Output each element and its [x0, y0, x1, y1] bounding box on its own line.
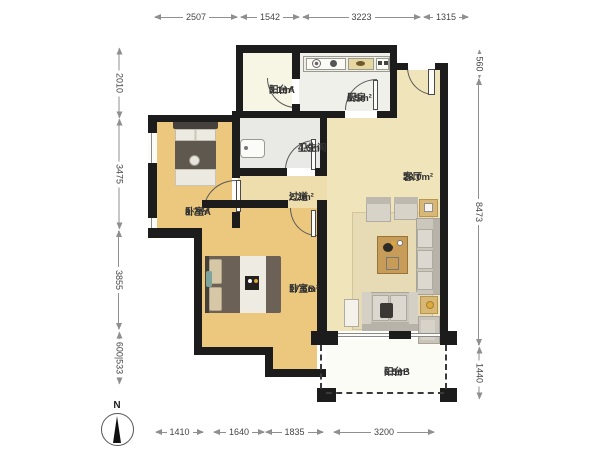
sofa-main-cushion-2 — [417, 250, 433, 269]
dimension-right-0: 560 — [473, 50, 483, 77]
bed-b-decor-dot-yellow — [254, 279, 258, 283]
balcony-b-sliding-window-1 — [338, 333, 389, 337]
sofa-small-arm-left — [362, 292, 371, 324]
balcony-b-sliding-window-2 — [411, 333, 440, 337]
bed-b-decor — [245, 276, 259, 290]
room-area: 8.7m² — [185, 207, 210, 219]
wall — [292, 45, 300, 79]
room-area: 4.6m² — [298, 143, 323, 155]
wall — [236, 45, 243, 113]
dimension-left-2: 3855 — [113, 231, 123, 329]
dimension-left-3: 600|533 — [113, 332, 123, 383]
wall — [390, 45, 397, 118]
bed-a-cushion — [189, 155, 200, 166]
wall — [440, 63, 448, 345]
stove-knob-icon — [356, 61, 365, 66]
wall — [389, 331, 411, 339]
room-area: 6.5m² — [347, 93, 372, 105]
wall — [148, 115, 157, 133]
sofa-small-pillow — [380, 303, 393, 318]
sofa-main-cushion-3 — [417, 271, 433, 290]
balcony-b-dashed-left — [320, 345, 324, 389]
wall — [148, 163, 157, 218]
dimension-left-1: 3475 — [113, 119, 123, 228]
dimension-right-2: 1440 — [473, 347, 483, 398]
dimension-bottom-0: 1410 — [156, 428, 203, 438]
armchair-1-back — [366, 197, 391, 204]
wall — [194, 228, 202, 355]
north-label: N — [113, 400, 120, 411]
bedroom-a-window-small — [148, 218, 157, 228]
bedroom-b-door-leaf — [311, 210, 316, 237]
dimension-top-2: 3223 — [303, 13, 420, 23]
sofa-main-cushion-1 — [417, 229, 433, 248]
sofa-small-arm-right — [409, 292, 418, 324]
wall — [232, 111, 345, 118]
room-area: 2.2m² — [289, 192, 314, 204]
bed-a-pillows — [175, 129, 216, 141]
dimension-left-0: 2010 — [113, 48, 123, 117]
sink-icon — [312, 59, 321, 68]
kitchen-door-leaf — [373, 80, 378, 110]
bed-b-decor-dot-white — [248, 279, 252, 283]
room-area: 28.0m² — [403, 172, 433, 184]
dimension-bottom-1: 1640 — [214, 428, 264, 438]
bed-b-teal-cushion — [206, 271, 212, 287]
dimension-top-1: 1542 — [241, 13, 299, 23]
coffee-table-tray-icon — [386, 257, 399, 270]
bed-a-sheet — [175, 169, 216, 186]
armchair-3-cushion — [421, 320, 435, 340]
dimension-top-0: 2507 — [155, 13, 237, 23]
armchair-2-back — [394, 197, 418, 204]
balcony-b-dashed-bottom — [326, 390, 444, 394]
wall — [265, 369, 326, 377]
wall — [202, 200, 288, 208]
dimension-right-1: 8473 — [473, 79, 483, 345]
room-area: 3.1m² — [269, 85, 294, 97]
burner-icon — [330, 60, 337, 67]
dimension-bottom-3: 3200 — [334, 428, 434, 438]
north-arrow-icon — [113, 416, 121, 443]
coffee-table-cup-icon — [397, 240, 403, 246]
plant-icon — [426, 301, 434, 309]
room-area: 6.5m² — [384, 367, 409, 379]
wall — [236, 45, 397, 53]
wall — [311, 331, 338, 345]
wall — [440, 331, 457, 345]
faucet-icon — [244, 146, 248, 150]
room-area: 17.6m² — [289, 284, 319, 296]
bedroom-a-window — [148, 133, 157, 163]
tv-cabinet — [344, 299, 359, 327]
floor-plan: 阳台A 3.1m² 厨房 6.5m² 卫生间 4.6m² 过道 2.2m² 客厅… — [0, 0, 600, 450]
wall — [148, 115, 238, 122]
entrance-door-leaf — [428, 69, 435, 95]
wall — [315, 168, 320, 176]
wall — [232, 212, 240, 228]
wall — [232, 168, 287, 176]
wall — [194, 347, 273, 355]
bed-b-pillow-2 — [209, 287, 222, 311]
dimension-bottom-2: 1835 — [266, 428, 323, 438]
cooktop-burner-1 — [378, 61, 382, 65]
cooktop-burner-2 — [384, 61, 388, 65]
coffee-table-dot — [391, 241, 396, 246]
lamp-icon — [424, 203, 433, 212]
sofa-main-backrest — [433, 219, 440, 294]
balcony-b-dashed-right — [443, 345, 447, 389]
dimension-top-3: 1315 — [424, 13, 468, 23]
wall — [397, 63, 408, 70]
balcony-b-floor — [326, 339, 444, 392]
wall — [317, 200, 327, 345]
